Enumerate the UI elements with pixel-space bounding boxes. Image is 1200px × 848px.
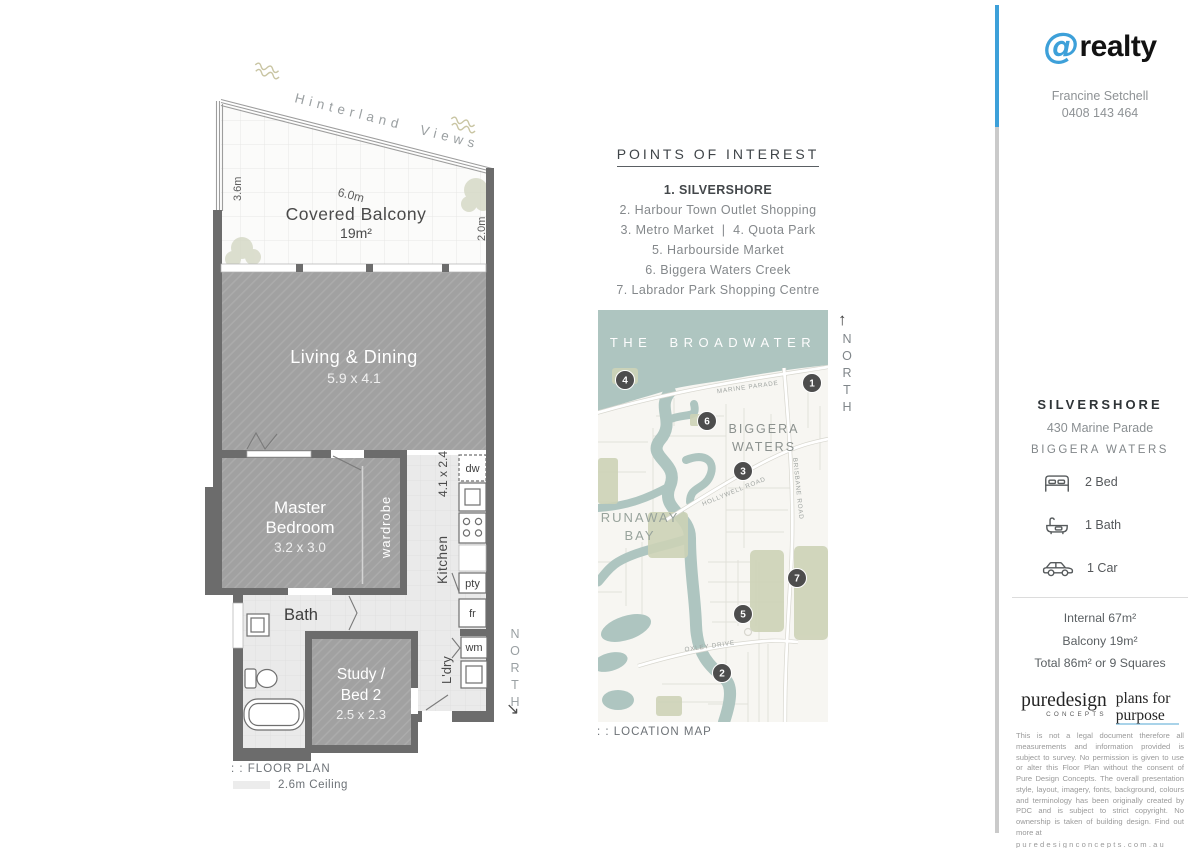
agent-details: Francine Setchell 0408 143 464: [1000, 88, 1200, 122]
master-size: 3.2 x 3.0: [274, 540, 326, 555]
poi-item: 1. SILVERSHORE: [572, 180, 864, 200]
area-total: Total 86m² or 9 Squares: [1000, 652, 1200, 675]
living-label: Living & Dining: [290, 347, 418, 367]
pty-label: pty: [465, 578, 480, 590]
points-of-interest: POINTS OF INTEREST 1. SILVERSHORE 2. Har…: [572, 146, 864, 300]
designer-url: puredesignconcepts.com.au: [1016, 840, 1184, 848]
dim-right: 2.0m: [476, 217, 488, 241]
area-label-runaway-2: BAY: [624, 528, 655, 543]
map-north-label: NORTH: [840, 332, 854, 417]
marker-5: 5: [734, 605, 753, 624]
dim-left: 3.6m: [232, 177, 244, 201]
puredesign-sub: CONCEPTS: [1021, 711, 1107, 718]
flyer-page: Hinterland Views Covered Balcony 19m² 6.…: [0, 0, 1200, 848]
feature-label: 2 Bed: [1085, 475, 1118, 489]
marker-3: 3: [734, 462, 753, 481]
master-label-2: Bedroom: [266, 518, 335, 537]
svg-text:3: 3: [740, 467, 746, 478]
feature-label: 1 Car: [1087, 561, 1118, 575]
feature-label: 1 Bath: [1085, 518, 1121, 532]
study-label-1: Study /: [337, 666, 386, 683]
location-map: THE BROADWATER MARINE PARADE BIGGERA WAT…: [598, 310, 828, 722]
poi-item: 6. Biggera Waters Creek: [572, 260, 864, 280]
tagline-line-2: purpose: [1116, 709, 1179, 726]
poi-title: POINTS OF INTEREST: [617, 146, 820, 167]
disclaimer-text: This is not a legal document therefore a…: [1016, 731, 1184, 837]
gray-divider: [995, 127, 999, 833]
poi-item: 2. Harbour Town Outlet Shopping: [572, 200, 864, 220]
puredesign-logo: puredesign CONCEPTS plans for purpose: [1000, 691, 1200, 725]
area-label-runaway-1: RUNAWAY: [601, 510, 680, 525]
kitchen-label: Kitchen: [435, 535, 450, 584]
water-label: THE BROADWATER: [610, 335, 816, 350]
property-name: SILVERSHORE: [1000, 397, 1200, 412]
map-north-arrow-icon: ↑: [838, 310, 847, 330]
balcony-label: Covered Balcony: [286, 204, 427, 224]
toilet: [245, 669, 256, 688]
map-caption: : : LOCATION MAP: [597, 726, 712, 738]
disclaimer: This is not a legal document therefore a…: [1016, 731, 1184, 848]
feature-row-car: 1 Car: [1042, 555, 1118, 581]
puredesign-name: puredesign: [1021, 691, 1107, 710]
property-address: 430 Marine Parade: [1000, 421, 1200, 435]
plan-north-arrow-icon: ↘: [506, 699, 519, 719]
bath-label: Bath: [284, 606, 318, 624]
balcony-area: 19m²: [340, 225, 372, 241]
sidebar-divider-line: [1012, 597, 1188, 598]
marker-4: 4: [616, 371, 635, 390]
marker-6: 6: [698, 412, 717, 431]
marker-7: 7: [788, 569, 807, 588]
floorplan-caption: : : FLOOR PLAN: [231, 763, 331, 775]
at-symbol-icon: @: [1043, 26, 1079, 67]
living-size: 5.9 x 4.1: [327, 370, 381, 386]
agent-name: Francine Setchell: [1000, 88, 1200, 105]
poi-item: 5. Harbourside Market: [572, 240, 864, 260]
svg-text:2: 2: [719, 669, 725, 680]
area-internal: Internal 67m²: [1000, 607, 1200, 630]
area-balcony: Balcony 19m²: [1000, 630, 1200, 653]
hall-floor: [243, 595, 486, 631]
dw-label: dw: [465, 463, 479, 475]
master-label-1: Master: [274, 498, 326, 517]
svg-text:7: 7: [794, 574, 800, 585]
bench: [459, 545, 486, 571]
study-label-2: Bed 2: [341, 687, 382, 704]
car-icon: [1042, 558, 1074, 578]
logo-text: realty: [1079, 30, 1156, 63]
wm-label: wm: [464, 642, 482, 654]
feature-row-bath: 1 Bath: [1042, 512, 1121, 538]
wardrobe-label: wardrobe: [378, 496, 393, 559]
poi-item: 3. Metro Market | 4. Quota Park: [572, 220, 864, 240]
faded-text-smudge: [233, 781, 270, 789]
svg-text:5: 5: [740, 610, 746, 621]
svg-text:4: 4: [622, 376, 628, 387]
ceiling-height-label: 2.6m Ceiling: [278, 779, 348, 791]
marker-1: 1: [803, 374, 822, 393]
marker-2: 2: [713, 664, 732, 683]
laundry-label: L'dry: [439, 656, 454, 684]
tagline-line-1: plans for: [1116, 692, 1179, 707]
svg-text:6: 6: [704, 417, 710, 428]
realty-logo: @realty: [1000, 26, 1200, 67]
accent-divider: [995, 5, 999, 127]
cooktop: [459, 513, 486, 543]
kitchen-size: 4.1 x 2.4: [436, 451, 450, 497]
poi-item: 7. Labrador Park Shopping Centre: [572, 280, 864, 300]
agent-phone: 0408 143 464: [1000, 105, 1200, 122]
fr-label: fr: [469, 608, 476, 620]
svg-text:1: 1: [809, 379, 815, 390]
study-size: 2.5 x 2.3: [336, 707, 386, 722]
area-summary: Internal 67m² Balcony 19m² Total 86m² or…: [1000, 607, 1200, 675]
area-label-biggera-1: BIGGERA: [729, 422, 800, 436]
area-label-biggera-2: WATERS: [732, 440, 796, 454]
property-suburb: BIGGERA WATERS: [1000, 444, 1200, 456]
bed-icon: [1042, 471, 1072, 493]
bath-icon: [1042, 514, 1072, 536]
feature-row-bed: 2 Bed: [1042, 469, 1118, 495]
